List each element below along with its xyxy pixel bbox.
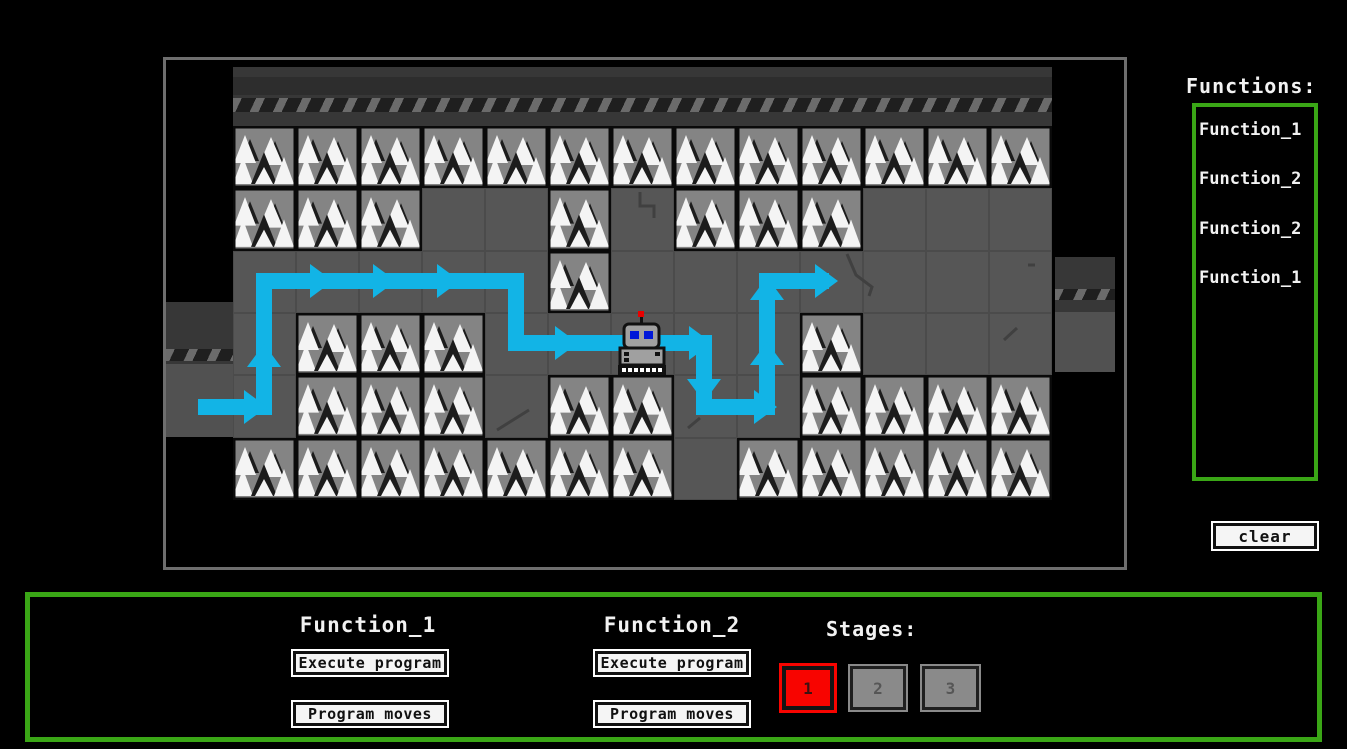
robot-body: [620, 348, 664, 365]
queued-function-2: Function_2: [1199, 169, 1301, 189]
clear-button[interactable]: clear: [1211, 521, 1319, 551]
function1-heading: Function_1: [218, 613, 518, 637]
stage-2-button[interactable]: 2: [848, 664, 908, 712]
robot-sprite: [613, 311, 671, 375]
function2-heading: Function_2: [522, 613, 822, 637]
stage-3-button[interactable]: 3: [920, 664, 981, 712]
function2-program-moves-button[interactable]: Program moves: [593, 700, 751, 728]
control-panel: Function_1 Execute program Program moves…: [25, 592, 1322, 742]
robot-antenna-tip: [638, 311, 644, 317]
queued-function-4: Function_1: [1199, 268, 1301, 288]
clear-button-label: clear: [1213, 523, 1317, 549]
queued-function-3: Function_2: [1199, 219, 1301, 239]
function2-execute-button[interactable]: Execute program: [593, 649, 751, 677]
stages-title: Stages:: [826, 617, 917, 641]
queued-function-1: Function_1: [1199, 120, 1301, 140]
functions-panel-title: Functions:: [1186, 74, 1316, 98]
function1-program-moves-button[interactable]: Program moves: [291, 700, 449, 728]
robot-head: [624, 324, 659, 348]
game-map-window: [163, 57, 1127, 570]
function1-execute-button[interactable]: Execute program: [291, 649, 449, 677]
stage-1-button[interactable]: 1: [779, 663, 837, 713]
robot-eye-left: [630, 331, 639, 339]
robot-eye-right: [644, 331, 653, 339]
functions-queue-box: Function_1 Function_2 Function_2 Functio…: [1192, 103, 1318, 481]
game-map: [166, 60, 1124, 567]
